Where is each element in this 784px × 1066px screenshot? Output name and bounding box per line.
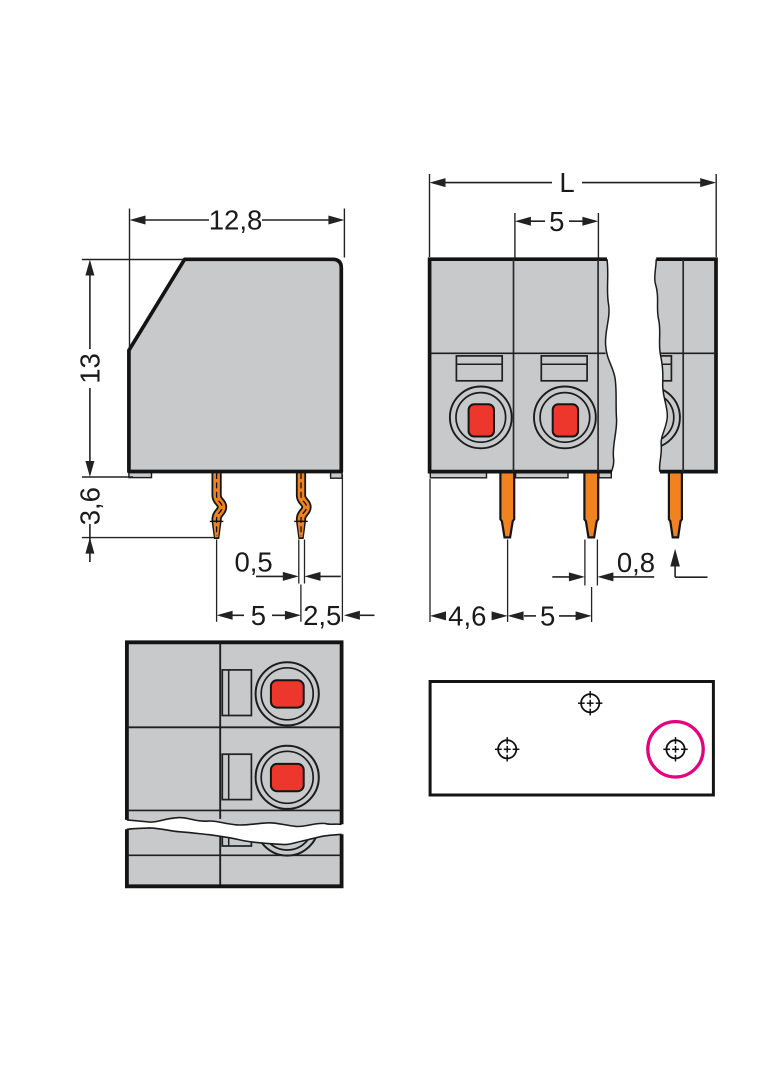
svg-text:5: 5 <box>549 206 564 237</box>
svg-text:13: 13 <box>75 353 106 384</box>
svg-text:3,6: 3,6 <box>75 487 106 525</box>
svg-text:12,8: 12,8 <box>209 205 263 236</box>
svg-text:L: L <box>559 167 574 198</box>
svg-text:5: 5 <box>540 601 555 632</box>
svg-text:4,6: 4,6 <box>448 601 486 632</box>
svg-text:5: 5 <box>251 600 266 631</box>
svg-text:0,8: 0,8 <box>617 547 655 578</box>
svg-text:2,5: 2,5 <box>303 600 341 631</box>
svg-text:0,5: 0,5 <box>234 546 272 577</box>
